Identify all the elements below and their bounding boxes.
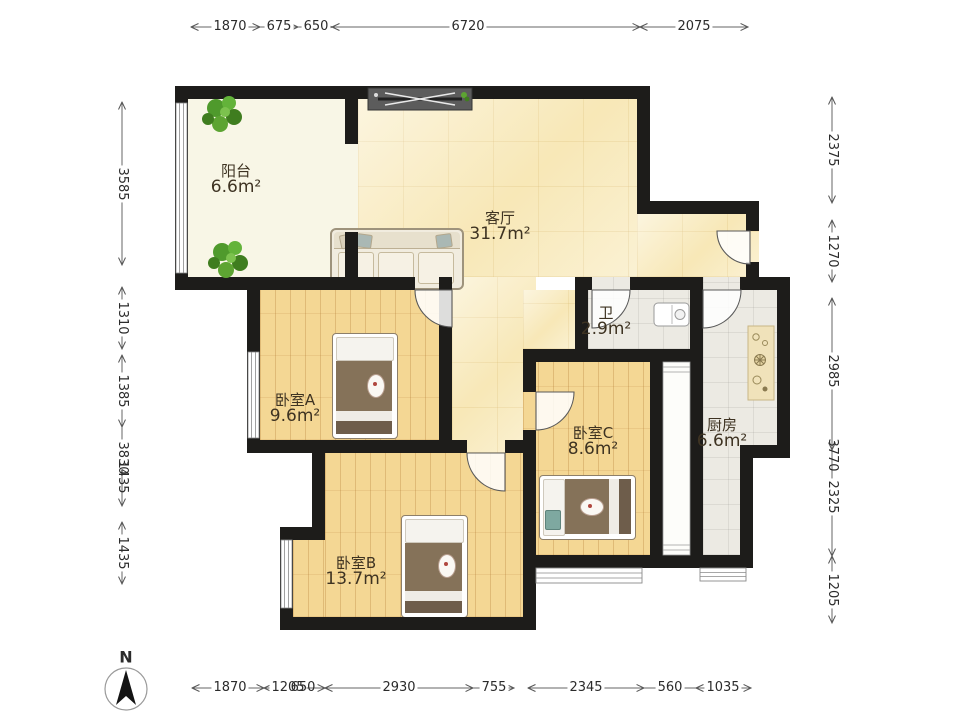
door-bedroom-b — [467, 453, 505, 491]
door-entry — [717, 231, 750, 264]
north-arrow-icon — [116, 670, 136, 705]
dim-left-5: 1435 — [115, 534, 129, 571]
toilet-icon — [654, 303, 689, 326]
dim-bottom-2: 650 — [289, 681, 318, 695]
window-bedroom-b — [281, 540, 292, 608]
dim-bottom-4: 755 — [480, 681, 509, 695]
dim-left-2: 1385 — [115, 372, 129, 409]
dimension-lines-right — [556, 97, 832, 623]
dim-top-0: 1870 — [211, 20, 248, 34]
plant-icon — [208, 241, 248, 278]
dim-top-3: 6720 — [449, 20, 486, 34]
dim-right-0: 2375 — [825, 131, 839, 168]
dim-left-0: 3585 — [115, 165, 129, 202]
door-bedroom-a — [415, 290, 452, 327]
door-bedroom-c — [536, 392, 574, 430]
room-label-living: 客厅 31.7m² — [469, 211, 530, 243]
dim-bottom-0: 1870 — [211, 681, 248, 695]
stove-burner-icon — [754, 354, 766, 366]
room-label-kitchen: 厨房 6.6m² — [697, 418, 747, 450]
dim-left-4: 1435 — [115, 458, 129, 495]
dim-right-5: 1205 — [825, 571, 839, 608]
dim-top-1: 675 — [265, 20, 294, 34]
dim-top-2: 650 — [302, 20, 331, 34]
kitchen-counter — [748, 326, 774, 400]
light-shaft — [663, 362, 690, 555]
compass-north-label: N — [117, 650, 134, 667]
door-kitchen — [703, 290, 741, 328]
dim-right-3: 3770 — [825, 436, 839, 473]
dim-bottom-7: 1035 — [704, 681, 741, 695]
tv-cabinet — [368, 88, 472, 110]
dim-right-4: 2325 — [825, 478, 839, 515]
plan-linework — [0, 0, 960, 723]
window-balcony-left — [176, 103, 187, 273]
room-label-balcony: 阳台 6.6m² — [211, 164, 261, 196]
room-label-bathroom: 卫 2.9m² — [581, 306, 631, 338]
room-label-bedroom-b: 卧室B 13.7m² — [325, 556, 386, 588]
dim-top-4: 2075 — [675, 20, 712, 34]
dim-right-1: 1270 — [825, 232, 839, 269]
dim-bottom-3: 2930 — [380, 681, 417, 695]
dim-left-1: 1310 — [115, 299, 129, 336]
bay-window-bedroom-c — [536, 568, 642, 583]
floor-plan: 阳台 6.6m² 客厅 31.7m² 卫 2.9m² 厨房 6.6m² 卧室A … — [0, 0, 960, 723]
room-label-bedroom-a: 卧室A 9.6m² — [270, 393, 320, 425]
dim-bottom-5: 2345 — [567, 681, 604, 695]
tv-knob-icon — [374, 93, 378, 97]
dim-bottom-6: 560 — [656, 681, 685, 695]
plant-icon — [202, 96, 242, 132]
window-bedroom-a — [248, 352, 259, 438]
window-kitchen — [700, 568, 746, 581]
dim-right-2: 2985 — [825, 352, 839, 389]
room-label-bedroom-c: 卧室C 8.6m² — [568, 426, 618, 458]
compass — [105, 668, 147, 710]
